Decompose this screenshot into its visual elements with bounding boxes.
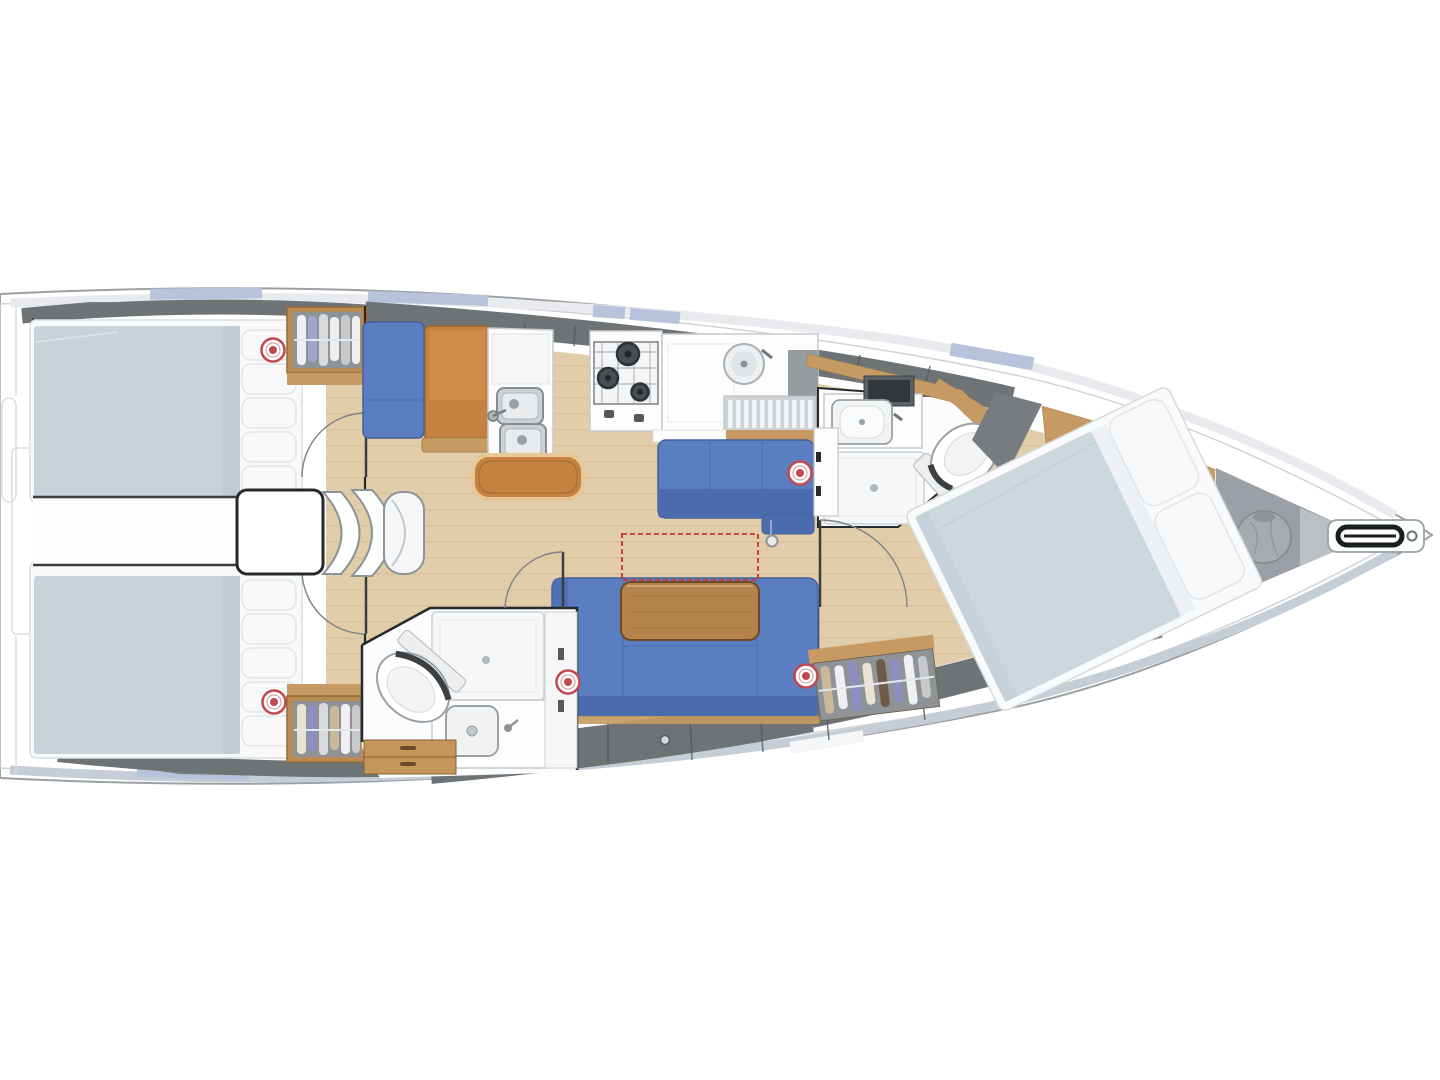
hatch-marker bbox=[557, 671, 580, 694]
nav-station bbox=[363, 322, 490, 452]
mast-foot bbox=[767, 536, 778, 547]
bowsprit bbox=[1328, 520, 1424, 552]
hatch-marker bbox=[795, 665, 818, 688]
salon-table bbox=[621, 582, 759, 640]
dish-rack bbox=[724, 396, 816, 432]
berth-duvet bbox=[34, 326, 240, 498]
aft-cabin-starboard bbox=[30, 562, 302, 758]
nav-seat bbox=[363, 322, 424, 438]
floor-plan-canvas bbox=[0, 0, 1440, 1080]
hanging-locker-aft-starboard bbox=[287, 684, 367, 762]
hatch-marker bbox=[262, 339, 285, 362]
hanging-locker-forward bbox=[808, 635, 942, 722]
hatch-marker bbox=[263, 691, 286, 714]
engine-box bbox=[237, 490, 323, 574]
head-door-panel bbox=[814, 428, 838, 516]
berth-duvet bbox=[34, 576, 240, 754]
floor-plan-page bbox=[0, 0, 1440, 1080]
walkway bbox=[33, 497, 237, 565]
hatch-marker bbox=[789, 462, 812, 485]
galley-bench bbox=[473, 455, 583, 499]
locker-knob bbox=[661, 736, 670, 745]
hanging-locker-aft-port bbox=[287, 307, 367, 385]
